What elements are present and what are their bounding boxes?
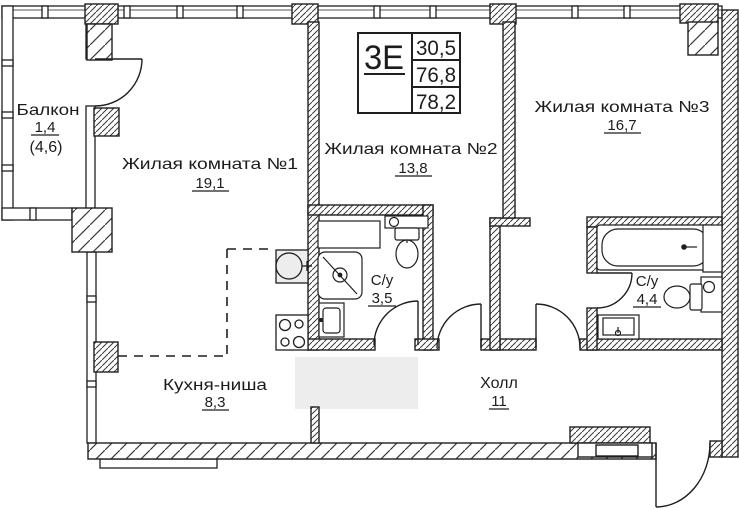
washbasin-icon	[701, 277, 722, 312]
entry-door	[656, 443, 710, 507]
living1-label: Жилая комната №1 19,1	[122, 156, 298, 192]
room-name: Жилая комната №3	[535, 99, 710, 116]
toilet-icon	[664, 284, 702, 310]
pillar	[490, 4, 516, 24]
corridor-wall-stub	[490, 218, 530, 226]
room-area: 8,3	[205, 394, 226, 411]
room-name: С/у	[371, 272, 394, 289]
room-area: 11	[491, 393, 507, 410]
stove-icon	[276, 315, 308, 350]
floor-plan: 3Е 30,5 76,8 78,2 Балкон 1,4 (4,6) Жилая…	[0, 0, 739, 509]
hall-furniture-zone	[295, 357, 418, 409]
total-area-value: 78,2	[416, 91, 456, 114]
room-area-alt: (4,6)	[30, 139, 63, 156]
exterior-sill	[100, 459, 217, 468]
corner-detail	[87, 24, 112, 60]
washing-machine-icon	[598, 315, 639, 339]
bathtub-icon	[597, 225, 714, 270]
bath1-door	[374, 301, 418, 345]
apartment-type-label: 3Е	[364, 39, 404, 77]
bottom-exterior-wall	[88, 443, 656, 459]
washbasin-icon	[385, 216, 428, 228]
bath1-counter	[318, 221, 380, 248]
kitchen-label: Кухня-ниша 8,3	[163, 377, 267, 411]
balcony-corner-block	[72, 208, 112, 252]
corridor-wall	[490, 218, 500, 350]
room-area: 13,8	[398, 160, 427, 177]
room-area: 3,5	[372, 290, 393, 307]
room-name: Жилая комната №1	[122, 156, 298, 173]
bath2-label: С/у 4,4	[633, 273, 661, 308]
floor-plan-drawing: 3Е 30,5 76,8 78,2 Балкон 1,4 (4,6) Жилая…	[0, 0, 739, 509]
balcony-door	[95, 59, 142, 106]
entry-jamb	[710, 441, 722, 457]
wall-living2-living3	[503, 22, 515, 218]
pillar	[85, 4, 118, 24]
room-area: 1,4	[35, 119, 56, 136]
bath1-label: С/у 3,5	[368, 272, 396, 307]
bath2-bottom-wall	[580, 339, 722, 350]
washing-machine-icon	[319, 303, 344, 337]
living3-corridor-door	[536, 304, 580, 348]
bath1-top-wall	[308, 205, 433, 215]
kitchen-sink-icon	[276, 250, 312, 283]
living-area-value: 30,5	[416, 37, 456, 60]
kitchen-fixtures	[276, 250, 312, 350]
bath2-left-wall-upper	[587, 227, 597, 273]
balcony-door-pillar	[94, 108, 119, 136]
balcony-label: Балкон 1,4 (4,6)	[17, 102, 80, 156]
bath2-shelf	[703, 225, 722, 272]
hall-label: Холл 11	[480, 375, 518, 410]
balcony-bottom-window	[2, 208, 72, 220]
info-box: 3Е 30,5 76,8 78,2	[358, 33, 460, 114]
corner-detail	[688, 22, 718, 55]
room-name: Кухня-ниша	[163, 377, 267, 394]
living2-door	[437, 304, 481, 348]
room-name: Холл	[480, 375, 518, 392]
pillar	[680, 4, 718, 23]
bath2-door	[597, 273, 632, 308]
usable-area-value: 76,8	[416, 64, 456, 87]
entry-niche-inset	[596, 445, 638, 456]
bath1-bottom-wall	[308, 339, 375, 350]
kitchen-zone-boundary	[118, 249, 273, 356]
pillar	[292, 4, 318, 24]
wall-living1-living2	[308, 22, 319, 350]
living3-label: Жилая комната №3 16,7	[535, 99, 710, 134]
room-area: 16,7	[607, 117, 636, 134]
right-exterior-wall	[722, 10, 738, 457]
bath2-left-wall-lower	[587, 308, 597, 350]
room-name: Балкон	[17, 102, 80, 119]
room-name: Жилая комната №2	[325, 141, 498, 158]
entry-niche-block	[570, 427, 650, 443]
living2-label: Жилая комната №2 13,8	[325, 141, 498, 177]
left-pillar	[94, 342, 118, 372]
toilet-icon	[395, 228, 419, 268]
room-area: 4,4	[637, 291, 658, 308]
shower-icon	[318, 252, 362, 299]
room-area: 19,1	[195, 175, 224, 192]
bathroom2-fixtures	[597, 225, 722, 339]
room-name: С/у	[636, 273, 659, 290]
kitchen-hall-stub	[311, 407, 319, 443]
hall-wall-segment	[500, 339, 536, 350]
